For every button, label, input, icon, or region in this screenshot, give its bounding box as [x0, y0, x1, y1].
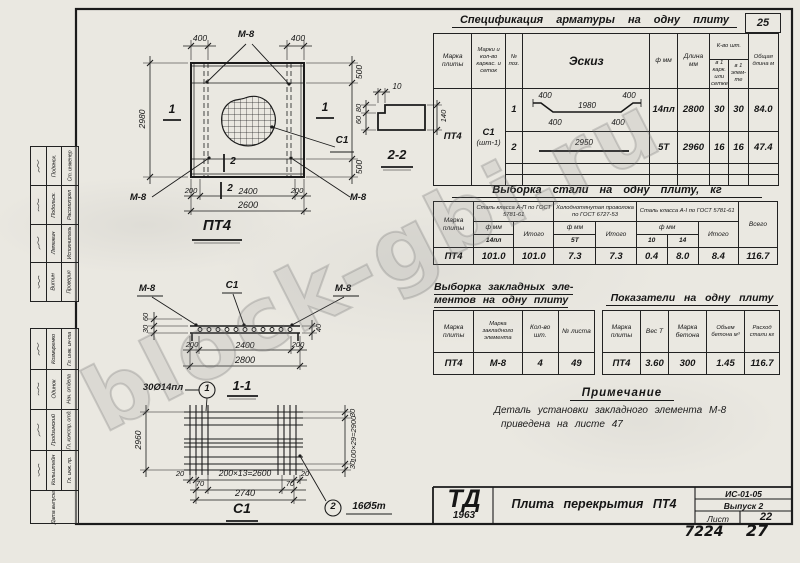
embeds-h-marka: Марка плиты [434, 311, 474, 353]
steel-d3a: 10 [636, 235, 667, 248]
sketch-dim: 400 [539, 91, 553, 100]
mesh-dim-20-left: 20 [172, 469, 188, 479]
steel-h-vsego: Всего [738, 202, 777, 248]
spec-r1-sketch: 400 1980 400 400 400 [523, 88, 650, 131]
steel-d1: 14пл [474, 235, 514, 248]
steel-h-dia2: ф мм [554, 222, 596, 235]
titleblock-title: Плита перекрытия ПТ4 [495, 499, 693, 509]
footer-code: 7224 [682, 527, 726, 537]
plan-c1-label: С1 [331, 136, 353, 146]
spec-h-qty: К-во шт. [710, 34, 748, 60]
mesh-dim-30-bottom: 30 [348, 455, 358, 475]
indicators-h-steel: Расход стали кг [745, 311, 780, 353]
indicators-h-marka: Марка плиты [603, 311, 641, 353]
sketch-dim: 400 [623, 91, 637, 100]
mesh-dim-70-left: 70 [193, 479, 207, 489]
plan-title: ПТ4 [193, 221, 241, 231]
spec-r2-sketch: 2950 [523, 131, 650, 163]
spec-karkas: С1 (шт-1) [472, 88, 505, 185]
steel-row-v3a: 0.4 [636, 248, 667, 265]
plan-section1-mark-right: 1 [318, 102, 332, 112]
empty-cell [677, 163, 709, 174]
spec-karkas-mark: С1 [473, 127, 503, 138]
plan-m8-label-top: М-8 [231, 30, 261, 40]
sec11-c1-label: С1 [220, 281, 244, 291]
stamp-role: Рассмотрел [62, 186, 78, 224]
steel-group3: Сталь класса А-I по ГОСТ 5781-61 [636, 202, 738, 222]
indicators-row-weight: 3.60 [641, 353, 669, 375]
spec-r1-total: 84.0 [748, 88, 778, 131]
sec22-title: 2-2 [379, 150, 415, 160]
stamp-row: Подольск. Рассмотрел [31, 185, 78, 224]
spec-table: Марка плиты Марки и кол-во каркас. и сет… [433, 33, 779, 186]
plan-section1-mark-left: 1 [165, 104, 179, 114]
sec11-title: 1-1 [224, 381, 260, 391]
mesh-dim-70-right: 70 [283, 479, 297, 489]
stamp-row: Кольштейн Гл. инж. пр. [31, 450, 78, 491]
embeds-row-qty: 4 [522, 353, 558, 375]
plan-dim-2980: 2980 [137, 99, 147, 139]
indicators-row-volume: 1.45 [707, 353, 745, 375]
spec-karkas-qty: (шт-1) [473, 138, 503, 147]
plan-dim-500-top: 500 [354, 57, 364, 87]
sketch-dim: 1980 [578, 101, 596, 110]
steel-d2: 5Т [554, 235, 596, 248]
stamp-row: Подянск. Ст. инженер [31, 147, 78, 185]
stamp-name: Гродзинский [47, 410, 62, 450]
steel-title: Выборка стали на одну плиту, кг [452, 184, 762, 198]
spec-h-dia: ф мм [650, 34, 677, 89]
stamp-name: Кольштейн [47, 451, 62, 491]
stamp-name: Ляпежин [47, 225, 62, 263]
stamp-row: Ляпежин Исполнитель [31, 224, 78, 263]
empty-cell [505, 163, 522, 174]
mesh-dim-2740: 2740 [226, 488, 264, 498]
steel-row-i2: 7.3 [596, 248, 636, 265]
signature [31, 451, 47, 491]
steel-table: Марка плиты Сталь класса А-П по ГОСТ 578… [433, 201, 778, 265]
sec11-dim-30: 30 [141, 319, 151, 339]
empty-cell [523, 163, 650, 174]
steel-h-dia1: ф мм [474, 222, 514, 235]
spec-r2-len: 2960 [677, 131, 709, 163]
spec-r2-q1: 16 [710, 131, 729, 163]
stamp-role: Нач. отдела [62, 370, 78, 410]
mesh-callout-text: 16Ø5т [346, 502, 392, 512]
stamp-name: Витин [47, 263, 62, 301]
stamp-role: Гл. констр. отд. [62, 410, 78, 450]
embeds-row-marka: ПТ4 [434, 353, 474, 375]
titleblock-issue: Выпуск 2 [697, 501, 790, 511]
logo-td: ТД [437, 487, 491, 512]
steel-row-i3: 8.4 [698, 248, 738, 265]
drawing-sheet: block-gbi.ru [0, 0, 800, 563]
indicators-h-concrete: Марка бетона [669, 311, 707, 353]
spec-r1-pos: 1 [505, 88, 522, 131]
note-line2: приведена на листе 47 [501, 419, 623, 430]
stamp-role: Ст. инженер [62, 147, 78, 185]
embeds-title-line1: Выборка закладных эле- [434, 281, 573, 295]
stamp-role: Гл. инж. пр. [62, 451, 78, 491]
mesh-dim-20-right: 20 [297, 469, 313, 479]
mesh-callout-number: 2 [327, 502, 339, 512]
plan-dim-200-left: 200 [183, 186, 199, 196]
plan-dim-500-bottom: 500 [354, 152, 364, 182]
sec11-dim-2400: 2400 [230, 340, 260, 350]
indicators-h-volume: Объем бетона м³ [707, 311, 745, 353]
spec-h-eskiz: Эскиз [523, 34, 650, 89]
empty-cell [710, 163, 729, 174]
spec-h-total: Общая длина м [748, 34, 778, 89]
stamp-role: Исполнитель [62, 225, 78, 263]
steel-h-marka: Марка плиты [434, 202, 474, 248]
steel-group1: Сталь класса А-П по ГОСТ 5781-61 [474, 202, 554, 222]
spec-r2-pos: 2 [505, 131, 522, 163]
indicators-row-marka: ПТ4 [603, 353, 641, 375]
embeds-row-element: М-8 [474, 353, 522, 375]
plan-m8-label-bottom-right: М-8 [344, 193, 372, 203]
stamp-name: Одинок [47, 370, 62, 410]
steel-h-itogo3: Итого [698, 222, 738, 248]
sec11-dim-40: 40 [314, 318, 324, 338]
indicators-h-weight: Вес Т [641, 311, 669, 353]
sec11-dim-2800: 2800 [230, 355, 260, 365]
logo-year: 1963 [437, 511, 491, 521]
spec-h-qty2: в 1 элем-те [729, 60, 748, 89]
plan-m8-label-bottom-left: М-8 [124, 193, 152, 203]
steel-row-v1: 101.0 [474, 248, 514, 265]
stamp-name: Козмиренко [47, 329, 62, 369]
plan-dim-400-left: 400 [186, 33, 214, 43]
sec11-dim-200-left: 200 [184, 340, 200, 350]
stamp-role: Проверил [62, 263, 78, 301]
steel-group2: Холоднотянутая проволока по ГОСТ 6727-53 [554, 202, 636, 222]
stamp-lower: Козмиренко Гл. инж. ин-та Одинок Нач. от… [30, 328, 79, 524]
spec-r2-total: 47.4 [748, 131, 778, 163]
empty-cell [729, 163, 748, 174]
stamp-date-label: Дата выпуска [31, 491, 76, 523]
steel-h-itogo1: Итого [514, 222, 554, 248]
spec-h-pos: № поз. [505, 34, 522, 89]
sec11-dim-200-right: 200 [290, 340, 306, 350]
steel-h-itogo2: Итого [596, 222, 636, 248]
spec-h-len: Длина мм [677, 34, 709, 89]
signature [31, 225, 47, 263]
footer-page: 27 [742, 526, 772, 536]
plan-dim-2400: 2400 [233, 186, 263, 196]
plan-section2-mark-inner: 2 [227, 157, 239, 167]
sketch-dim: 400 [549, 118, 563, 127]
spec-r1-q2: 30 [729, 88, 748, 131]
titleblock-sheet-label: Лист [697, 514, 739, 524]
sec11-m8-left: М-8 [133, 284, 161, 294]
indicators-table: Марка плиты Вес Т Марка бетона Объем бет… [602, 310, 780, 375]
signature [31, 147, 47, 185]
spec-r2-dia: 5Т [650, 131, 677, 163]
sec22-dim-10: 10 [389, 82, 405, 92]
note-title: Примечание [570, 387, 674, 401]
steel-row-v2: 7.3 [554, 248, 596, 265]
stamp-upper: Подянск. Ст. инженер Подольск. Рассмотре… [30, 146, 79, 302]
spec-h-qty1: в 1 карк. или сетке [710, 60, 729, 89]
steel-row-i1: 101.0 [514, 248, 554, 265]
stamp-row: Витин Проверил [31, 262, 78, 301]
mesh-dim-200x13: 200×13=2600 [212, 468, 278, 478]
stamp-row: Гродзинский Гл. констр. отд. [31, 409, 78, 450]
steel-row-total: 116.7 [738, 248, 777, 265]
embeds-table: Марка плиты Марка закладного элемента Ко… [433, 310, 595, 375]
embeds-row-sheet: 49 [558, 353, 594, 375]
embeds-h-element: Марка закладного элемента [474, 311, 522, 353]
indicators-row-concrete: 300 [669, 353, 707, 375]
sec11-m8-right: М-8 [329, 284, 357, 294]
embeds-title-line2: ментов на одну плиту [434, 294, 568, 308]
empty-cell [748, 163, 778, 174]
signature [31, 263, 47, 301]
sec22-dim-60: 60 [354, 110, 364, 130]
signature [31, 370, 47, 410]
stamp-date-row: Дата выпуска [31, 490, 78, 523]
sketch-dim: 2950 [574, 138, 593, 147]
signature [31, 410, 47, 450]
stamp-name: Подольск. [47, 186, 62, 224]
steel-d3b: 14 [667, 235, 698, 248]
steel-row-v3b: 8.0 [667, 248, 698, 265]
plan-dim-2600: 2600 [231, 200, 265, 210]
stamp-role: Гл. инж. ин-та [62, 329, 78, 369]
indicators-row-steel: 116.7 [745, 353, 780, 375]
stamp-row: Одинок Нач. отдела [31, 369, 78, 410]
mesh-title: С1 [224, 503, 260, 513]
spec-r1-len: 2800 [677, 88, 709, 131]
mesh-dim-2960: 2960 [133, 420, 143, 460]
spec-h-marka: Марка плиты [434, 34, 472, 89]
sec11-callout-text: 30Ø14пл [138, 383, 188, 393]
spec-title: Спецификация арматуры на одну плиту [452, 14, 737, 28]
spec-r2-q2: 16 [729, 131, 748, 163]
plan-dim-200-right: 200 [289, 186, 305, 196]
indicators-title: Показатели на одну плиту [606, 292, 778, 306]
plan-dim-400-right: 400 [284, 33, 312, 43]
spec-r1-dia: 14пл [650, 88, 677, 131]
sheet-corner-number: 25 [745, 13, 781, 33]
titleblock-code: ИС-01-05 [697, 489, 790, 499]
sec11-callout-number: 1 [201, 384, 213, 394]
spec-h-karkas: Марки и кол-во каркас. и сеток [472, 34, 505, 89]
embeds-h-sheet: № листа [558, 311, 594, 353]
spec-r1-q1: 30 [710, 88, 729, 131]
empty-cell [650, 163, 677, 174]
stamp-row: Козмиренко Гл. инж. ин-та [31, 329, 78, 369]
note-line1: Деталь установки закладного элемента М-8 [494, 405, 726, 416]
signature [31, 186, 47, 224]
signature [31, 329, 47, 369]
steel-row-marka: ПТ4 [434, 248, 474, 265]
spec-marka: ПТ4 [434, 88, 472, 185]
embeds-h-qty: Кол-во шт. [522, 311, 558, 353]
stamp-name: Подянск. [47, 147, 62, 185]
sketch-dim: 400 [612, 118, 626, 127]
steel-h-dia3: ф мм [636, 222, 698, 235]
